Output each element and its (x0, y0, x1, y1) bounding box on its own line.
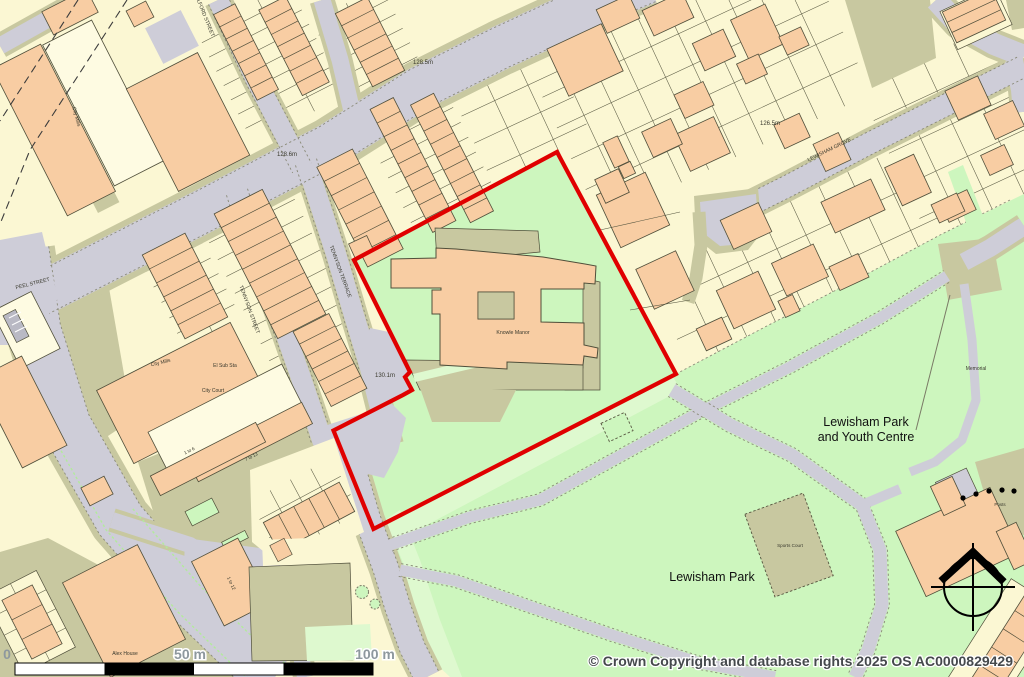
svg-text:128.5m: 128.5m (413, 60, 433, 66)
svg-text:Posts: Posts (994, 502, 1006, 507)
svg-text:100 m: 100 m (355, 646, 395, 662)
svg-text:Sports Court: Sports Court (777, 543, 804, 548)
svg-text:Knowle Manor: Knowle Manor (496, 330, 529, 336)
svg-text:City Court: City Court (202, 388, 225, 394)
svg-text:130.1m: 130.1m (375, 373, 395, 379)
svg-text:Memorial: Memorial (966, 366, 987, 372)
svg-text:0: 0 (3, 646, 11, 662)
svg-text:128.6m: 128.6m (277, 152, 297, 158)
svg-text:and Youth Centre: and Youth Centre (818, 430, 915, 444)
svg-text:El Sub Sta: El Sub Sta (213, 363, 237, 369)
svg-text:Lewisham Park: Lewisham Park (669, 570, 755, 584)
svg-text:126.5m: 126.5m (760, 121, 780, 127)
svg-text:Lewisham Park: Lewisham Park (823, 415, 909, 429)
svg-text:Alex House: Alex House (112, 651, 138, 657)
svg-text:© Crown Copyright and database: © Crown Copyright and database rights 20… (589, 653, 1014, 669)
svg-text:50 m: 50 m (174, 646, 206, 662)
